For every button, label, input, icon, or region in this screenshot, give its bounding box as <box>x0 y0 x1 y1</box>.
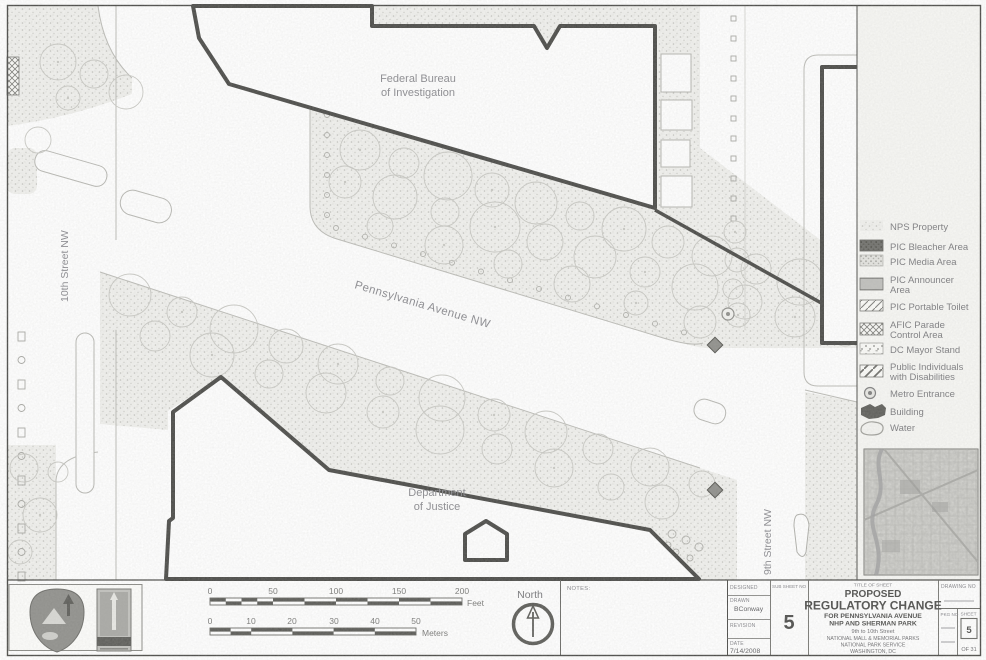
drawing-no-label: DRAWING NO <box>941 584 976 590</box>
meters-tick: 30 <box>329 616 339 626</box>
locator-inset-map <box>864 449 978 575</box>
tenth-street-label: 10th Street NW <box>59 230 71 302</box>
plaza-structures <box>661 54 692 207</box>
fbi-label-line2: of Investigation <box>381 87 455 99</box>
sheet-title-line3: FOR PENNSYLVANIA AVENUE <box>824 613 922 620</box>
site-plan-map: Federal Bureau of Investigation Departme… <box>0 0 986 660</box>
wide-diagonal-swatch <box>860 365 883 377</box>
legend-label: PIC Portable Toilet <box>890 302 969 313</box>
drawn-value: BConway <box>734 606 764 613</box>
sheet-subtitle-line1: 9th to 10th Street <box>852 629 895 635</box>
sheet-subtitle-line3: NATIONAL PARK SERVICE <box>841 643 906 649</box>
drawing-sheet: Federal Bureau of Investigation Departme… <box>0 0 986 660</box>
ninth-street-label: 9th Street NW <box>762 509 774 575</box>
legend-item-building: Building <box>861 404 924 419</box>
feet-tick: 150 <box>392 586 406 596</box>
feet-unit-label: Feet <box>467 598 485 608</box>
diagonal-hatch-swatch <box>860 300 883 311</box>
legend-label: Area <box>890 285 911 296</box>
metro-entrance-dot <box>726 312 730 316</box>
east-building-outline <box>822 67 862 343</box>
legend-label: Metro Entrance <box>890 389 955 400</box>
water-icon <box>861 422 883 435</box>
crosshatch-swatch <box>860 323 883 335</box>
legend-label: PIC Bleacher Area <box>890 242 969 253</box>
parade-control-marker <box>7 57 19 95</box>
designed-label: DESIGNED <box>730 585 758 591</box>
dark-fill-swatch <box>860 240 883 251</box>
sub-sheet-label: SUB SHEET NO <box>772 584 807 589</box>
legend-item-bleacher: PIC Bleacher Area <box>860 240 969 253</box>
sheet-subtitle-line4: WASHINGTON, DC <box>850 649 896 655</box>
sheet-label: SHEET <box>961 612 977 618</box>
sheet-subtitle-line2: NATIONAL MALL & MEMORIAL PARKS <box>827 636 920 642</box>
legend-item-portable-toilet: PIC Portable Toilet <box>860 300 969 313</box>
sparse-dots-swatch <box>860 343 883 354</box>
date-value: 7/14/2008 <box>730 648 760 655</box>
meters-tick: 10 <box>246 616 256 626</box>
sheet-number: 5 <box>966 625 972 636</box>
drawn-label: DRAWN <box>730 598 750 604</box>
metro-dot-icon <box>868 391 872 395</box>
national-mall-logo <box>97 589 131 651</box>
legend-label: Control Area <box>890 330 944 341</box>
sub-sheet-number: 5 <box>783 612 794 634</box>
meters-tick: 20 <box>287 616 297 626</box>
feet-tick: 50 <box>268 586 278 596</box>
pkg-no-label: PKG NO <box>941 612 959 617</box>
doj-label-line2: of Justice <box>414 501 460 513</box>
north-label: North <box>517 589 543 601</box>
feet-tick: 0 <box>208 586 213 596</box>
meters-tick: 0 <box>208 616 213 626</box>
agency-logo-box <box>9 585 142 653</box>
legend-panel: NPS Property PIC Bleacher Area PIC Media… <box>857 6 981 580</box>
meters-unit-label: Meters <box>422 628 448 638</box>
legend-item-media: PIC Media Area <box>860 255 957 268</box>
notes-label: NOTES: <box>567 586 590 592</box>
legend-label: with Disabilities <box>889 372 955 383</box>
legend-label: Water <box>890 423 915 434</box>
legend-label: Building <box>890 407 924 418</box>
feet-tick: 100 <box>329 586 343 596</box>
revision-label: REVISION <box>730 623 756 629</box>
title-of-sheet-label: TITLE OF SHEET <box>854 583 892 589</box>
sheet-title-line2: REGULATORY CHANGE <box>804 599 942 613</box>
sheet-title-line4: NHP AND SHERMAN PARK <box>829 621 917 628</box>
meters-tick: 40 <box>370 616 380 626</box>
feet-tick: 200 <box>455 586 469 596</box>
legend-label: NPS Property <box>890 222 948 233</box>
dense-stipple-swatch <box>860 255 883 266</box>
doj-label-line1: Department <box>408 487 465 499</box>
legend-label: PIC Media Area <box>890 257 957 268</box>
horizontal-lines-swatch <box>860 278 883 290</box>
nps-stipple-swatch <box>860 220 883 231</box>
date-label: DATE <box>730 641 744 647</box>
legend-item-mayor-stand: DC Mayor Stand <box>860 343 960 356</box>
fbi-label-line1: Federal Bureau <box>380 73 456 85</box>
legend-label: DC Mayor Stand <box>890 345 960 356</box>
meters-tick: 50 <box>411 616 421 626</box>
sheet-of-label: OF 31 <box>961 647 976 653</box>
